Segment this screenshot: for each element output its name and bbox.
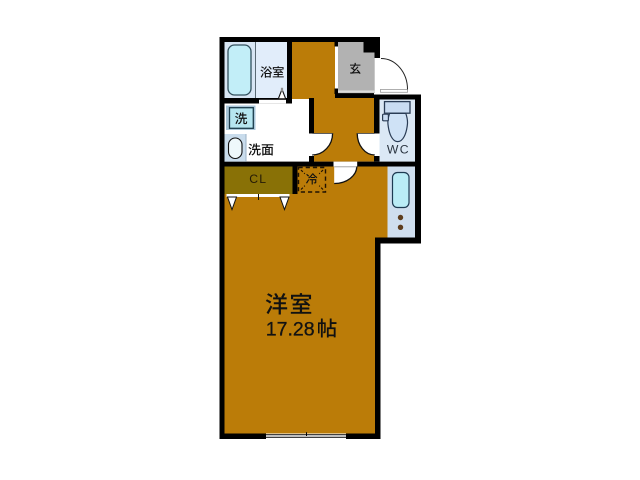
svg-text:CL: CL xyxy=(249,172,267,186)
svg-text:17.28: 17.28 xyxy=(266,319,315,341)
svg-text:WC: WC xyxy=(387,143,410,157)
